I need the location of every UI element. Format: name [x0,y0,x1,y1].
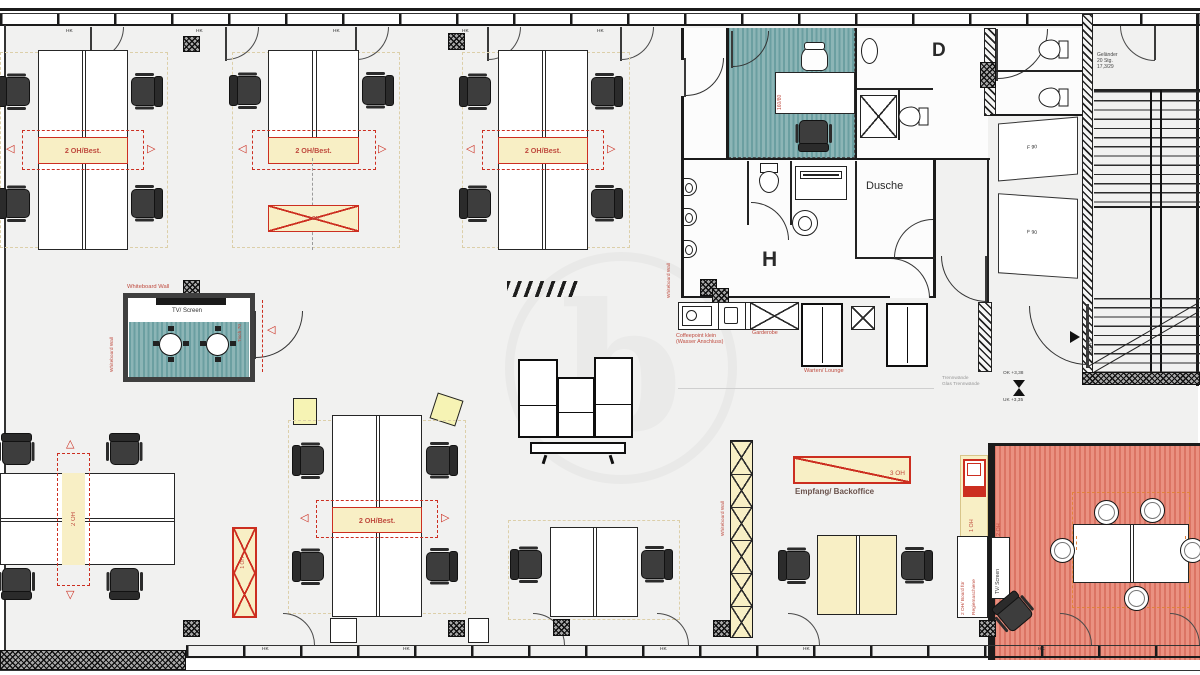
shower-label: Dusche [866,180,903,193]
radiator-label: HK [262,647,269,653]
desk-size-label: 160/80 [778,76,784,110]
counter-divider [745,302,746,330]
radiator-label: HK [403,647,410,653]
arrow-right-icon [607,143,615,154]
counter-divider [718,302,719,330]
wardrobe-label: Garderobe [752,330,778,336]
printer-base [965,486,984,495]
f90-panel: F 90 [998,193,1078,279]
lounge-sofa [801,303,843,367]
office-chair [2,568,31,595]
locker-cabinet [518,359,558,438]
partition-note: Trennwände Glas Trennwände [942,376,980,387]
lounge-table [851,306,875,330]
sideboard-strip: 2 OH [62,473,85,565]
office-chair [110,568,139,595]
meeting-room-carpet [129,322,249,377]
arrow-left-icon [300,512,308,523]
office-chair [110,438,139,465]
shower-wall [855,161,857,259]
removed-desk-centerline [312,158,313,250]
radiator-label: HK [66,29,73,35]
office-chair [362,76,389,105]
arrow-left-icon [267,324,275,335]
coffeepoint-label: Coffeepoint klein (Wasser Anschluss) [676,333,723,345]
sideboard-label-band: 2 OH/Best. [332,507,422,533]
column-pier [713,620,730,637]
level-marker-icon [1013,388,1025,396]
radiator-label: HK [333,29,340,35]
hatch-marks [507,281,579,297]
stall-wall [996,70,1082,72]
radiator-label: HK [597,29,604,35]
printer-strip-label: 1 OH [969,504,975,532]
toilet [758,163,780,194]
office-chair [464,189,491,218]
arrow-left-icon [466,143,474,154]
f90-label: F 90 [1027,145,1037,152]
whiteboard-wall-label: Whiteboard Wall [667,226,673,298]
wc-divider-wall [855,28,857,158]
sideboard-label: 3 OH [890,470,905,477]
whiteboard-wall-label: Whiteboard Wall [721,446,727,536]
arrow-right-icon [441,512,449,523]
office-chair [901,551,928,580]
office-chair [3,77,30,106]
conference-room-top-wall [988,443,1200,446]
office-chair [641,550,668,579]
office-chair [591,189,618,218]
office-chair [234,76,261,105]
tv-cabinet: TV/ Screen [991,537,1010,599]
sideboard-label: 2 OH [71,512,77,526]
conference-chair [1140,498,1165,523]
column-pier [979,620,996,637]
kettle-icon [724,307,738,324]
floor-plan: b HK HK HK HK HK HK 2 OH/Best. 2 OH/Best… [0,0,1200,675]
round-table [206,333,229,356]
stall-wall [747,161,749,225]
column-pier [980,62,996,88]
sideboard-label: 2 OH/Best. [525,146,561,155]
radiator-box [468,618,489,643]
arrow-down-icon [66,589,74,600]
locker-cabinet [594,357,633,438]
shower-stall [860,95,897,138]
sideboard-label: 2 OH/Best. [295,146,331,155]
crossed-out-sideboard: 1 OH [268,205,359,232]
sideboard-label: 2 OH/Best. [359,516,395,525]
f90-panel: F 90 [998,117,1078,182]
door-handle-icon [1070,331,1080,343]
dimension-line [678,388,934,389]
desk-pair [550,527,638,617]
level-label-top: OK +3,38 [1003,371,1023,377]
whiteboard-wall-unit [730,440,753,638]
corridor-wall [681,28,684,60]
round-basin-inner [798,216,812,231]
partition-note-line2: Glas Trennwände [942,382,980,388]
column-pier [448,33,465,50]
reception-desk [817,535,897,615]
vanity-mirror-line [803,174,839,176]
conference-chair [1124,586,1149,611]
printer-screen [967,463,981,476]
sideboard-label-band: 2 OH/Best. [498,137,588,164]
lounge-sofa [886,303,928,367]
table-height-label: Tisch 70 [238,306,244,342]
sideboard-label: 2 OH/Best. [65,146,101,155]
lounge-label: Warten/ Lounge [804,368,844,374]
whiteboard-wall-label: Whiteboard Wall [127,284,169,291]
stair-note: Geländer 20 Stg. 17,3/29 [1097,53,1118,70]
wc-men-label: H [762,248,777,272]
fire-door-label: T30 RS [1089,316,1095,356]
level-marker-icon [1013,380,1025,388]
coffeepoint-label-line2: (Wasser Anschluss) [676,339,723,345]
cabinet-x-lower [234,573,255,616]
glass-wall-line [262,300,263,372]
door-jamb-wall [978,302,992,372]
office-chair [3,189,30,218]
whiteboard-wall-label: Whiteboard Wall [110,300,116,372]
radiator-label: HK [196,29,203,35]
arrow-right-icon [147,143,155,154]
tv-screen-label: TV/ Screen [172,308,202,315]
office-chair [131,77,158,106]
wc-women-label: D [932,40,946,62]
f90-label: F 90 [1027,230,1037,236]
crossed-cabinet: 1 OH [232,527,257,618]
sideboard-label-band: 2 OH/Best. [38,137,128,164]
radiator-label: HK [803,647,810,653]
toilet [898,106,929,128]
radiator-box [330,618,357,643]
arrow-right-icon [378,143,386,154]
tv-cabinet-top-label: 2 OH [996,512,1002,536]
conference-chair [1180,538,1200,563]
focus-room-desk [775,72,855,114]
office-chair [426,552,453,581]
tv-cabinet-label: TV/ Screen [996,544,1002,594]
office-chair [591,77,618,106]
reception-sideboard: 3 OH [793,456,911,484]
column-pier [183,620,200,637]
wc-men-right-wall [933,158,936,298]
crossed-sideboard-label: 1 OH [308,216,320,222]
coffee-machine-dial [686,310,697,321]
locker-base [530,442,626,454]
arrow-left-icon [6,143,14,154]
office-chair [799,120,828,147]
level-label-bottom: UK +3,35 [1003,398,1023,404]
top-window-mullions [0,14,1200,24]
board-cabinet-label-line2: Regiemaschiene [972,541,978,615]
sideboard-label-band: 2 OH/Best. [268,137,359,164]
arrow-left-icon [238,143,246,154]
stair-edge [1094,206,1200,208]
arrow-up-icon [66,438,74,449]
conference-chair [1094,500,1119,525]
conference-chair [1050,538,1075,563]
corridor-wall [681,96,684,160]
cabinet-label: 1 OH [241,557,247,569]
bottom-wall-solid [0,650,186,670]
office-chair [2,438,31,465]
stair-bottom-wall [1082,372,1200,385]
locker-cabinet [557,377,595,438]
table-mark [1076,536,1077,550]
bottom-wall-inner [186,656,1200,658]
ground-line [0,670,1200,671]
stair-treads-upper [1094,91,1200,207]
radiator-label: HK [1038,647,1045,653]
toilet [1038,87,1069,109]
round-table [159,333,182,356]
office-chair [464,77,491,106]
office-chair [783,551,810,580]
column-pier [553,619,570,636]
stair-note-line3: 17,3/29 [1097,65,1118,71]
focus-room-left-wall [726,28,729,158]
conference-table [1073,524,1189,583]
top-wall-bottom [0,24,1200,26]
column-pier [712,288,729,303]
reception-label: Empfang/ Backoffice [795,487,874,496]
toilet [1038,39,1069,61]
top-wall-outer [0,8,1200,11]
wc-bottom-wall [990,114,1082,116]
wc-men-bottom-wall [929,296,936,298]
tv-screen-bar [156,298,226,305]
wc-men-top-wall [681,158,935,160]
office-chair [426,446,453,475]
bottom-window-mullions [186,646,1200,656]
column-pier [448,620,465,637]
printer-icon [963,459,986,497]
stall-wall [857,88,933,90]
stall-wall [790,161,792,225]
office-chair [515,550,542,579]
office-chair [297,552,324,581]
corridor-wall [987,160,989,302]
board-cabinet: 2 OH/ Board für Regiemaschiene [957,536,988,618]
wardrobe-unit [750,302,799,330]
office-chair [131,189,158,218]
board-cabinet-label-line1: 2 OH/ Board für [961,541,967,615]
radiator-label: HK [660,647,667,653]
washbasin [861,38,878,64]
column-pier [183,36,200,52]
visitor-chair [801,46,828,71]
office-chair [297,446,324,475]
